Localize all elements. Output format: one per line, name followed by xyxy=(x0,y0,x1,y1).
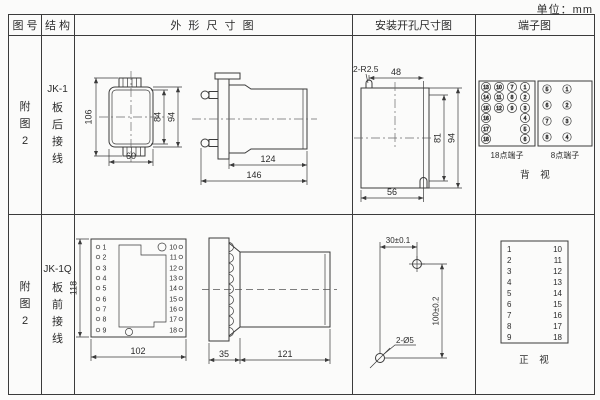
dim-total-depth: 146 xyxy=(246,170,261,180)
dim-height: 118 xyxy=(69,281,79,295)
structure-char: 前 xyxy=(52,299,63,312)
front-view: 1 2 3 4 5 6 7 8 9 10 11 12 13 14 15 xyxy=(69,239,187,361)
terminal-number: 15 xyxy=(553,300,562,309)
terminal-number: 5 xyxy=(507,289,512,298)
dim-inner-height: 84 xyxy=(153,112,163,122)
structure-char: 线 xyxy=(52,333,63,346)
fig-char: 2 xyxy=(22,135,28,148)
terminal-number: 1 xyxy=(566,87,569,93)
panel-terminals-left: 1 2 3 4 5 6 7 8 9 xyxy=(96,245,106,335)
row2-fig-no: 附 图 2 xyxy=(9,214,41,394)
terminal-number: 4 xyxy=(566,135,569,141)
terminal-number: 16 xyxy=(553,311,562,320)
structure-char: 接 xyxy=(52,136,63,149)
dim-width: 102 xyxy=(130,346,145,356)
terminal-number: 4 xyxy=(524,116,527,122)
terminal-number: 3 xyxy=(507,267,512,276)
terminal-number: 4 xyxy=(507,278,512,287)
terminal-number: 13 xyxy=(169,276,177,283)
terminal-number: 7 xyxy=(546,119,549,125)
dim-hole-spacing-h: 30±0.1 xyxy=(386,236,411,245)
terminal-number: 2 xyxy=(524,95,527,101)
model-name: JK-1 xyxy=(47,83,68,96)
terminal-number: 1 xyxy=(524,85,527,91)
terminal-number: 10 xyxy=(553,245,562,254)
terminal-number: 15 xyxy=(169,297,177,304)
terminal-number: 1 xyxy=(507,245,512,254)
structure-char: 板 xyxy=(52,102,63,115)
terminal-number: 16 xyxy=(169,307,177,314)
terminal-number: 9 xyxy=(507,333,512,342)
hole-diameter-label: 2-Ø5 xyxy=(396,336,414,345)
terminal-number: 13 xyxy=(553,278,562,287)
col-header-structure: 结 构 xyxy=(41,15,74,35)
fig-char: 图 xyxy=(20,298,31,311)
spec-table: 图 号 结 构 外 形 尺 寸 图 安装开孔尺寸图 端子图 附 图 2 JK-1… xyxy=(8,14,595,395)
dim-bottom-width: 56 xyxy=(387,187,397,197)
terminal-number: 5 xyxy=(524,127,527,133)
fig-char: 附 xyxy=(20,281,31,294)
terminal-number: 17 xyxy=(553,322,562,331)
dim-top-width: 48 xyxy=(391,67,401,77)
terminal-number: 17 xyxy=(169,317,177,324)
dim-hole-spacing-v: 100±0.2 xyxy=(432,296,441,325)
terminal-number: 13 xyxy=(483,85,489,91)
col-header-outline: 外 形 尺 寸 图 xyxy=(74,15,352,35)
terminal-number: 12 xyxy=(169,266,177,273)
terminal-number: 5 xyxy=(103,286,107,293)
dim-width: 60 xyxy=(126,151,136,161)
row2-install-drawing: 30±0.1 100±0.2 2-Ø5 xyxy=(352,214,475,394)
dim-body-depth: 121 xyxy=(277,349,292,359)
col-header-terminal: 端子图 xyxy=(475,15,594,35)
terminal-number: 14 xyxy=(483,95,489,101)
terminal-number: 14 xyxy=(169,286,177,293)
view-label-rear: 背 视 xyxy=(520,169,554,181)
row1-outline-drawing: 106 84 94 60 xyxy=(74,35,352,214)
terminal-number: 9 xyxy=(511,106,514,112)
terminal-number: 18 xyxy=(169,328,177,335)
structure-char: 线 xyxy=(52,153,63,166)
terminal-number: 14 xyxy=(553,289,562,298)
terminal-number: 15 xyxy=(483,106,489,112)
terminal-number: 2 xyxy=(507,256,512,265)
fig-char: 2 xyxy=(22,315,28,328)
terminal-list-right: 10 11 12 13 14 15 16 17 18 xyxy=(553,245,562,342)
terminal-number: 18 xyxy=(553,333,562,342)
terminal-grid-18pt: 13 10 7 1 14 11 8 2 15 12 9 3 16 4 17 5 … xyxy=(481,82,529,143)
terminal-number: 8 xyxy=(546,135,549,141)
terminal-number: 6 xyxy=(103,297,107,304)
fig-char: 图 xyxy=(20,118,31,131)
panel-terminals-right: 10 11 12 13 14 15 16 17 18 xyxy=(169,245,182,335)
terminal-number: 1 xyxy=(103,245,107,252)
cutout-outline xyxy=(354,80,436,202)
structure-char: 板 xyxy=(52,282,63,295)
terminal-number: 8 xyxy=(511,95,514,101)
terminal-number: 11 xyxy=(170,255,177,262)
terminal-list-left: 1 2 3 4 5 6 7 8 9 xyxy=(507,245,512,342)
terminal-number: 6 xyxy=(524,137,527,143)
view-label-front: 正 视 xyxy=(519,354,553,366)
terminal-number: 4 xyxy=(103,276,107,283)
row2-outline-drawing: 1 2 3 4 5 6 7 8 9 10 11 12 13 14 15 xyxy=(74,214,352,394)
dim-outer-height: 94 xyxy=(167,112,177,122)
terminal-stud xyxy=(201,91,218,99)
terminal-number: 7 xyxy=(103,307,107,314)
terminal-number: 12 xyxy=(553,267,562,276)
mounting-hole xyxy=(158,243,166,251)
terminal-number: 7 xyxy=(507,311,512,320)
terminal-number: 17 xyxy=(483,127,489,133)
terminal-number: 10 xyxy=(169,245,177,252)
row1-install-drawing: 48 2-R2.5 81 94 56 xyxy=(352,35,475,214)
mounting-hole xyxy=(125,328,132,335)
structure-char: 后 xyxy=(52,119,63,132)
dim-body-depth: 124 xyxy=(260,154,275,164)
terminal-number: 2 xyxy=(103,255,107,262)
terminal-number: 3 xyxy=(103,266,107,273)
side-view: 124 146 xyxy=(192,73,317,185)
terminal-number: 6 xyxy=(546,103,549,109)
terminal-number: 6 xyxy=(507,300,512,309)
row1-terminal-drawing: 13 10 7 1 14 11 8 2 15 12 9 3 16 4 17 5 … xyxy=(475,35,594,214)
model-name: JK-1Q xyxy=(43,263,71,276)
fig-char: 附 xyxy=(20,101,31,114)
terminal-number: 11 xyxy=(554,256,563,265)
row2-terminal-drawing: 1 2 3 4 5 6 7 8 9 10 11 12 13 14 15 16 1… xyxy=(475,214,594,394)
drawing-page: 单位：mm 图 号 结 构 外 形 尺 寸 图 安装开孔尺寸图 端子图 附 图 … xyxy=(0,0,600,400)
dim-inner-height: 81 xyxy=(433,133,443,143)
terminal-number: 8 xyxy=(507,322,512,331)
terminal-number: 5 xyxy=(546,87,549,93)
col-header-fig-no: 图 号 xyxy=(9,15,41,35)
dim-outer-height: 94 xyxy=(447,133,457,143)
terminal-number: 11 xyxy=(496,95,501,101)
row2-structure: JK-1Q 板 前 接 线 xyxy=(41,214,74,394)
col-header-install: 安装开孔尺寸图 xyxy=(352,15,475,35)
terminal-number: 18 xyxy=(483,137,489,143)
terminal-8pt-label: 8点端子 xyxy=(551,150,579,160)
dim-panel-depth: 35 xyxy=(219,349,229,359)
terminal-number: 8 xyxy=(103,317,107,324)
structure-char: 接 xyxy=(52,316,63,329)
terminal-number: 7 xyxy=(511,85,514,91)
slot-radius-label: 2-R2.5 xyxy=(353,64,379,74)
row1-structure: JK-1 板 后 接 线 xyxy=(41,35,74,214)
terminal-stud xyxy=(201,139,218,147)
terminal-number: 16 xyxy=(483,116,489,122)
terminal-number: 12 xyxy=(496,106,502,112)
terminal-number: 10 xyxy=(496,85,502,91)
front-view: 106 84 94 60 xyxy=(84,71,183,166)
terminal-grid-8pt: 5 1 6 2 7 3 8 4 xyxy=(543,85,571,141)
terminal-number: 2 xyxy=(566,103,569,109)
side-view: 35 121 xyxy=(202,238,337,364)
row1-fig-no: 附 图 2 xyxy=(9,35,41,214)
terminal-number: 3 xyxy=(524,106,527,112)
terminal-18pt-label: 18点端子 xyxy=(491,150,524,160)
dim-total-height: 106 xyxy=(84,109,94,124)
terminal-number: 3 xyxy=(566,119,569,125)
terminal-number: 9 xyxy=(103,328,107,335)
